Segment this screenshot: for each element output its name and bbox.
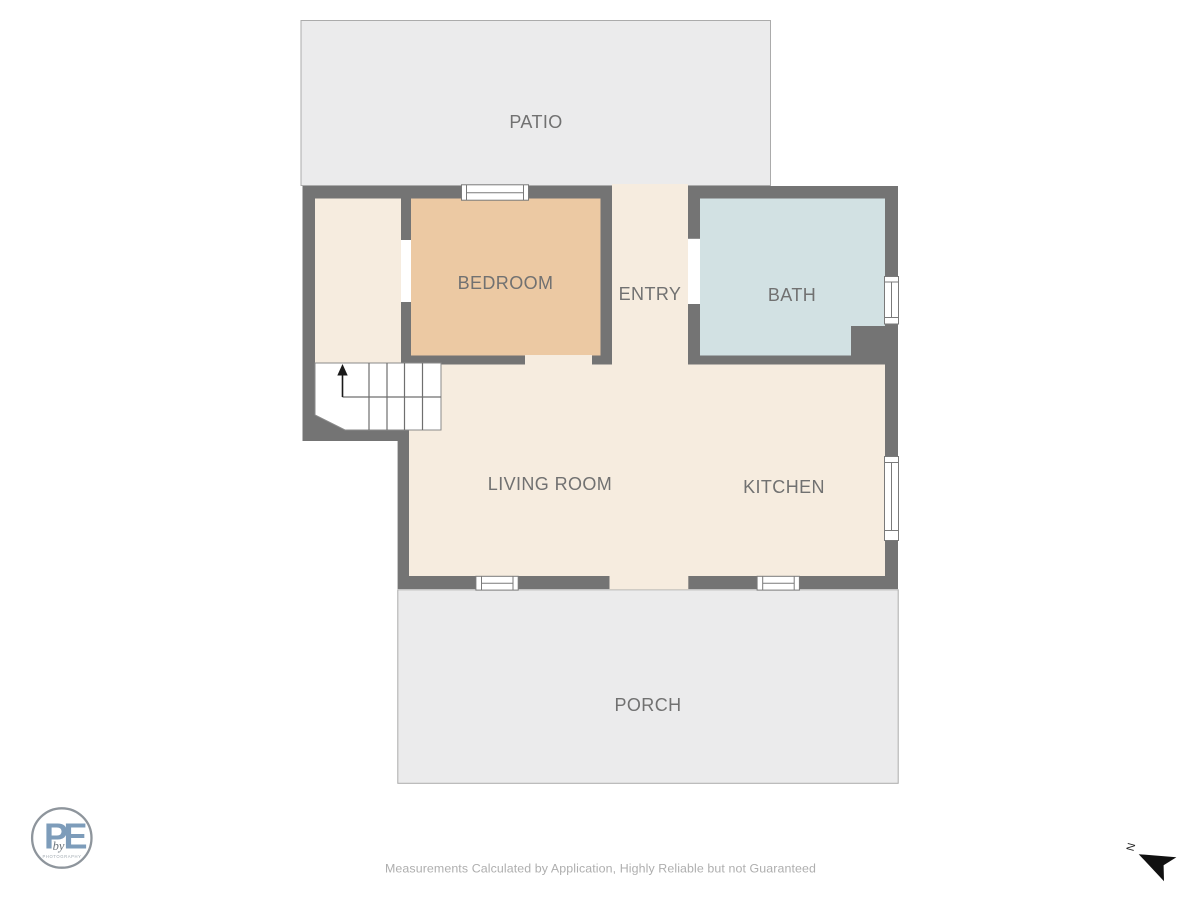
svg-text:LIVING ROOM: LIVING ROOM [488, 474, 612, 494]
svg-text:PORCH: PORCH [614, 695, 681, 715]
svg-text:by: by [53, 839, 65, 853]
svg-text:KITCHEN: KITCHEN [743, 477, 825, 497]
svg-text:ENTRY: ENTRY [619, 284, 682, 304]
svg-text:PE: PE [44, 816, 87, 857]
svg-text:PATIO: PATIO [509, 112, 562, 132]
svg-text:BEDROOM: BEDROOM [458, 273, 554, 293]
svg-text:PHOTOGRAPHY: PHOTOGRAPHY [42, 854, 81, 859]
svg-text:BATH: BATH [768, 285, 816, 305]
svg-text:Measurements Calculated by App: Measurements Calculated by Application, … [385, 862, 816, 876]
svg-text:N: N [1125, 842, 1139, 853]
